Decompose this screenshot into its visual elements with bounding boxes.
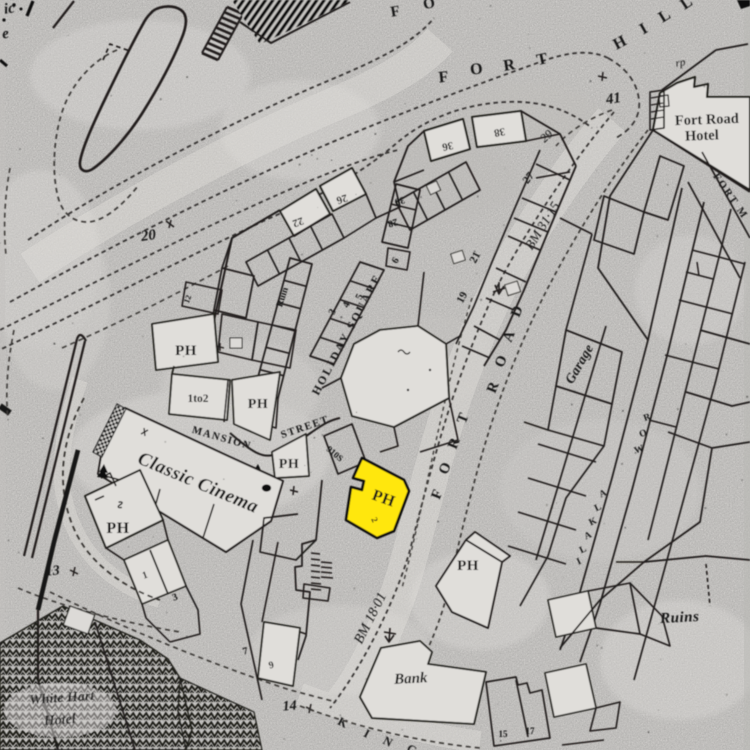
svg-text:14: 14 [282, 698, 297, 714]
svg-text:Hotel: Hotel [42, 712, 76, 729]
svg-text:15: 15 [499, 729, 509, 739]
svg-text:PH: PH [106, 520, 129, 537]
svg-text:PH: PH [248, 397, 268, 412]
svg-text:O: O [422, 0, 437, 13]
svg-text:20: 20 [139, 227, 158, 245]
svg-text:1to2: 1to2 [187, 393, 208, 405]
svg-text:O: O [469, 60, 484, 79]
svg-text:Hotel: Hotel [685, 127, 719, 144]
svg-text:Fort Road: Fort Road [675, 111, 740, 129]
svg-text:17: 17 [526, 726, 536, 736]
svg-text:F: F [438, 69, 450, 87]
svg-text:41: 41 [604, 90, 622, 108]
svg-text:PH: PH [457, 558, 479, 574]
svg-text:PH: PH [279, 457, 299, 472]
svg-text:PH: PH [175, 343, 197, 359]
svg-text:Bank: Bank [393, 670, 429, 688]
